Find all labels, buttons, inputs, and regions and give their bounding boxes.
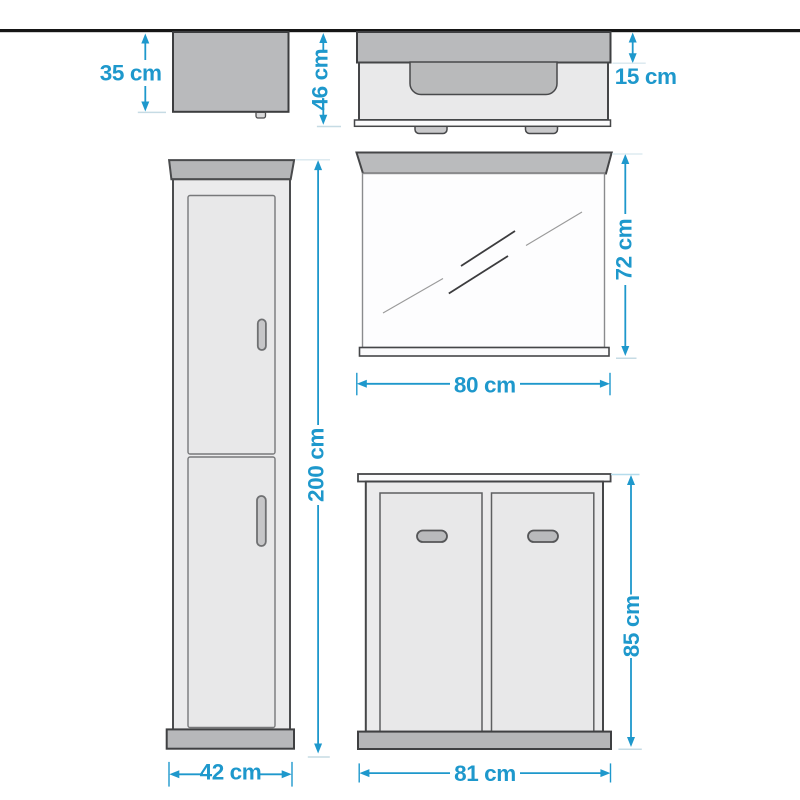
svg-text:85 cm: 85 cm: [619, 595, 644, 657]
svg-text:35 cm: 35 cm: [100, 61, 162, 86]
svg-text:46 cm: 46 cm: [308, 49, 333, 111]
svg-text:80 cm: 80 cm: [454, 372, 516, 397]
svg-text:72 cm: 72 cm: [612, 219, 637, 281]
svg-text:42 cm: 42 cm: [200, 760, 262, 785]
svg-text:81 cm: 81 cm: [454, 761, 516, 786]
svg-text:15 cm: 15 cm: [615, 64, 677, 89]
svg-text:200 cm: 200 cm: [304, 428, 329, 502]
